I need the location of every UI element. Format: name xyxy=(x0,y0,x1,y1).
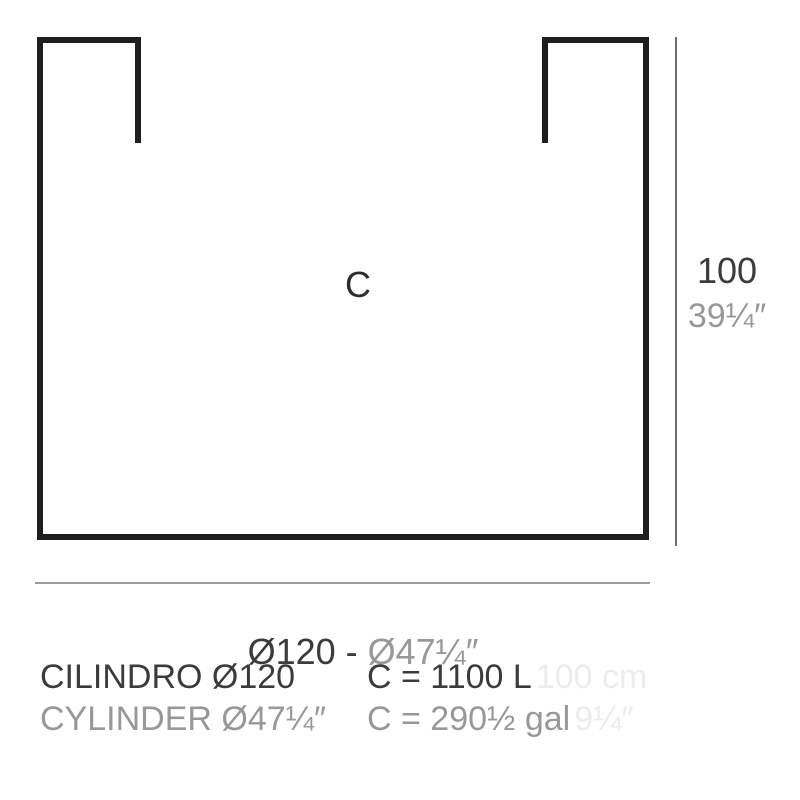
capacity-gallons: C = 290½ gal9¼″ xyxy=(367,700,634,739)
top-rim-right-segment xyxy=(542,37,649,43)
inner-lip-left xyxy=(135,37,141,143)
spec-row-metric: CILINDRO Ø120 C = 1100 L100 cm xyxy=(0,658,800,700)
product-name-metric: CILINDRO Ø120 xyxy=(40,658,295,697)
volume-letter-label: C xyxy=(345,264,372,306)
capacity-liters: C = 1100 L100 cm xyxy=(367,658,647,697)
ghost-text-imperial: 9¼″ xyxy=(574,700,633,738)
ghost-text-metric: 100 cm xyxy=(536,658,648,696)
height-metric-label: 100 xyxy=(677,250,777,292)
product-name-imperial: CYLINDER Ø47¼″ xyxy=(40,700,326,739)
planter-outline xyxy=(37,37,649,540)
diameter-dimension-line xyxy=(35,582,650,584)
capacity-gallons-value: C = 290½ gal xyxy=(367,700,570,738)
product-spec-sheet: C 100 39¼″ Ø120 - Ø47¼″ CILINDRO Ø120 C … xyxy=(0,0,800,800)
capacity-liters-value: C = 1100 L xyxy=(367,658,532,696)
inner-lip-right xyxy=(542,37,548,143)
height-imperial-label: 39¼″ xyxy=(677,297,777,336)
spec-row-imperial: CYLINDER Ø47¼″ C = 290½ gal9¼″ xyxy=(0,700,800,742)
top-rim-left-segment xyxy=(37,37,141,43)
